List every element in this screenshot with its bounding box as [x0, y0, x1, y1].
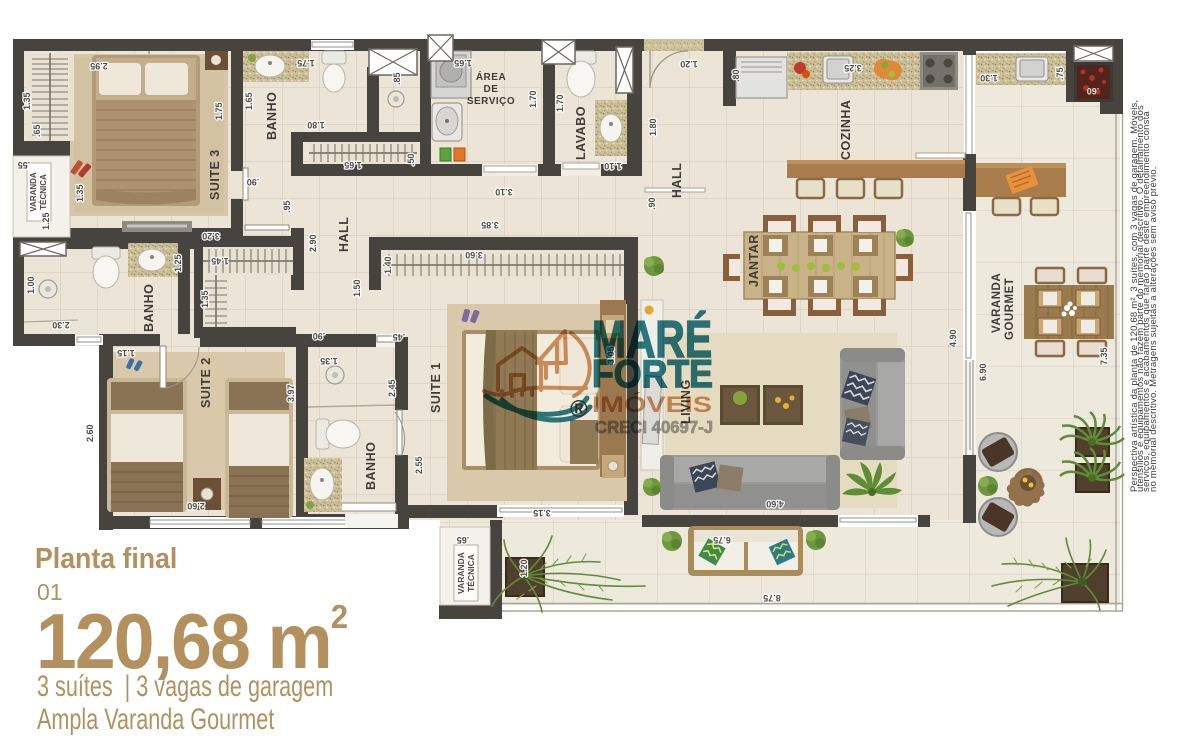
svg-text:VARANDA: VARANDA [29, 172, 38, 212]
svg-text:TÉCNICA: TÉCNICA [39, 174, 48, 210]
svg-text:ÁREA: ÁREA [476, 70, 506, 83]
svg-text:1.20: 1.20 [680, 59, 698, 69]
svg-text:.65: .65 [457, 535, 470, 545]
svg-text:.55: .55 [18, 160, 31, 170]
svg-text:1.75: 1.75 [297, 58, 315, 68]
svg-text:LAVABO: LAVABO [574, 106, 588, 160]
svg-text:GOURMET: GOURMET [1004, 278, 1016, 340]
svg-text:.80: .80 [731, 69, 741, 82]
svg-text:BANHO: BANHO [142, 284, 156, 332]
svg-text:BANHO: BANHO [265, 92, 279, 140]
svg-text:CRECI 40697-J: CRECI 40697-J [595, 417, 713, 437]
svg-text:1.45: 1.45 [211, 256, 229, 266]
svg-text:1.70: 1.70 [555, 94, 565, 112]
svg-text:3.10: 3.10 [495, 187, 513, 197]
svg-text:2.45: 2.45 [387, 379, 397, 397]
svg-text:1.50: 1.50 [352, 279, 362, 297]
svg-text:SUITE 1: SUITE 1 [429, 362, 443, 413]
svg-text:1.80: 1.80 [648, 118, 658, 136]
svg-text:DE: DE [484, 84, 499, 95]
svg-text:SERVIÇO: SERVIÇO [467, 96, 515, 107]
svg-text:3.25: 3.25 [844, 63, 862, 73]
svg-text:1.70: 1.70 [528, 90, 538, 108]
svg-text:2.95: 2.95 [90, 61, 108, 71]
svg-text:2.60: 2.60 [85, 424, 95, 442]
svg-text:TÉCNICA: TÉCNICA [466, 554, 476, 592]
svg-text:1.35: 1.35 [22, 92, 32, 110]
svg-text:.95: .95 [282, 200, 292, 213]
svg-text:HALL: HALL [670, 163, 684, 198]
svg-text:6.75: 6.75 [713, 535, 731, 545]
svg-text:1.35: 1.35 [200, 290, 210, 308]
svg-text:1.30: 1.30 [980, 73, 998, 83]
svg-text:3.85: 3.85 [481, 220, 499, 230]
svg-text:8.75: 8.75 [763, 593, 781, 603]
svg-text:.90: .90 [313, 331, 326, 341]
svg-text:IMÓVEIS: IMÓVEIS [592, 392, 712, 417]
svg-text:SUITE 2: SUITE 2 [199, 357, 213, 408]
svg-text:2.30: 2.30 [52, 320, 70, 330]
svg-text:®: ® [570, 396, 588, 423]
svg-text:JANTAR: JANTAR [747, 234, 761, 287]
svg-text:.50: .50 [406, 153, 416, 166]
svg-text:3.20: 3.20 [202, 231, 220, 241]
svg-text:SUITE 3: SUITE 3 [208, 149, 222, 200]
svg-text:1.20: 1.20 [519, 559, 529, 577]
svg-text:.90: .90 [647, 197, 657, 210]
svg-text:4.90: 4.90 [948, 329, 958, 347]
svg-text:HALL: HALL [337, 217, 351, 252]
svg-text:1.75: 1.75 [214, 102, 224, 120]
svg-text:7.35: 7.35 [1099, 347, 1109, 365]
svg-text:1.35: 1.35 [320, 356, 338, 366]
svg-text:.75: .75 [1055, 67, 1065, 80]
svg-text:VARANDA: VARANDA [456, 552, 466, 594]
svg-text:1.65: 1.65 [344, 160, 362, 170]
svg-text:.60: .60 [1087, 86, 1100, 96]
svg-text:1.35: 1.35 [75, 184, 85, 202]
svg-text:6.90: 6.90 [978, 363, 988, 381]
svg-text:.85: .85 [392, 72, 402, 85]
svg-text:1.65: 1.65 [454, 58, 472, 68]
svg-text:4.60: 4.60 [766, 499, 784, 509]
svg-text:1.25: 1.25 [173, 254, 183, 272]
svg-text:.45: .45 [393, 332, 406, 342]
svg-text:FORTE: FORTE [592, 353, 713, 396]
svg-text:1.80: 1.80 [307, 120, 325, 130]
svg-text:1.00: 1.00 [26, 276, 36, 294]
svg-text:1.10: 1.10 [604, 161, 622, 171]
svg-text:VARANDA: VARANDA [991, 273, 1003, 333]
svg-text:COZINHA: COZINHA [839, 100, 853, 160]
svg-text:.65: .65 [32, 124, 42, 137]
svg-text:2.60: 2.60 [187, 501, 205, 511]
svg-text:.90: .90 [247, 177, 260, 187]
svg-text:BANHO: BANHO [364, 442, 378, 490]
svg-text:2.90: 2.90 [308, 234, 318, 252]
svg-text:3.97: 3.97 [286, 384, 296, 402]
svg-text:3.15: 3.15 [533, 508, 551, 518]
svg-text:2.55: 2.55 [414, 456, 424, 474]
svg-text:3.60: 3.60 [465, 250, 483, 260]
svg-text:1.65: 1.65 [244, 92, 254, 110]
svg-text:1.40: 1.40 [383, 256, 393, 274]
svg-text:1.25: 1.25 [41, 212, 51, 230]
svg-text:1.15: 1.15 [117, 348, 135, 358]
